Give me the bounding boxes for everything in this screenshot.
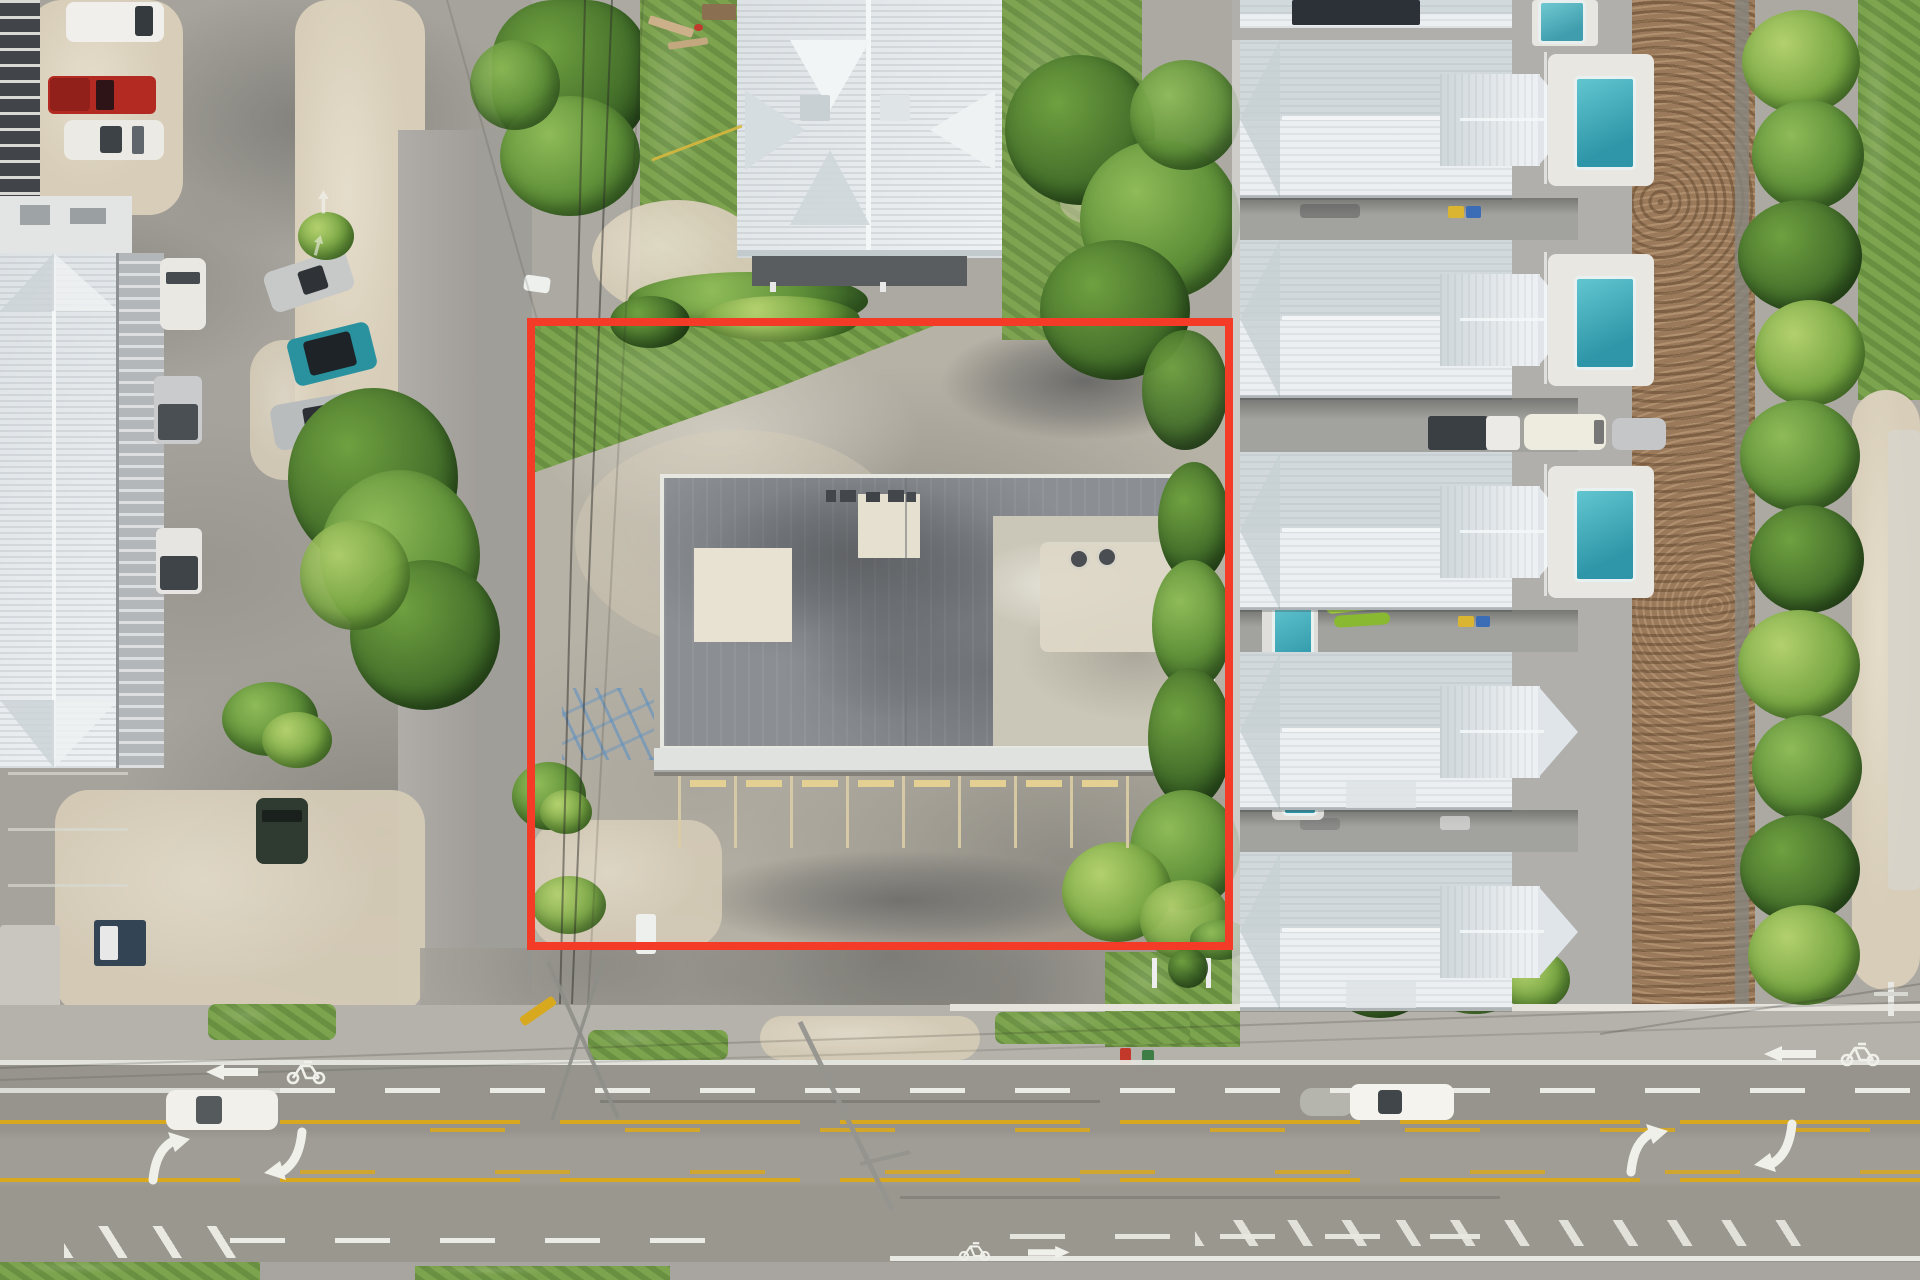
bike-symbol-west-left-icon	[288, 1062, 324, 1083]
bike-lane-arrow-west-left-icon	[206, 1064, 258, 1080]
turn-arrow-down-shaft-left-icon	[280, 1132, 302, 1173]
power-line-wire	[447, 0, 540, 330]
property-boundary-outline	[527, 318, 1233, 950]
power-line-wire	[0, 1022, 1920, 1080]
power-line-wire	[0, 1002, 1920, 1068]
turn-arrow-down-head-right-icon	[1754, 1153, 1776, 1172]
bike-symbol-east-icon	[960, 1243, 989, 1260]
bike-lane-arrow-west-right-icon	[1764, 1046, 1816, 1062]
guy-wire-yellow	[652, 126, 742, 160]
bike-symbol-west-right-icon	[1842, 1044, 1878, 1065]
side-road-arrow-2-icon	[311, 234, 326, 257]
aerial-photo-stage	[0, 0, 1920, 1280]
turn-arrow-down-shaft-right-icon	[1770, 1124, 1792, 1165]
side-road-arrow-icon	[318, 190, 329, 213]
bike-lane-arrow-east-icon	[1028, 1246, 1070, 1259]
turn-arrow-up-shaft-left-icon	[153, 1140, 175, 1180]
utility-pole	[800, 1022, 892, 1210]
turn-arrow-down-head-left-icon	[264, 1161, 286, 1180]
turn-arrow-up-shaft-right-icon	[1631, 1132, 1653, 1172]
